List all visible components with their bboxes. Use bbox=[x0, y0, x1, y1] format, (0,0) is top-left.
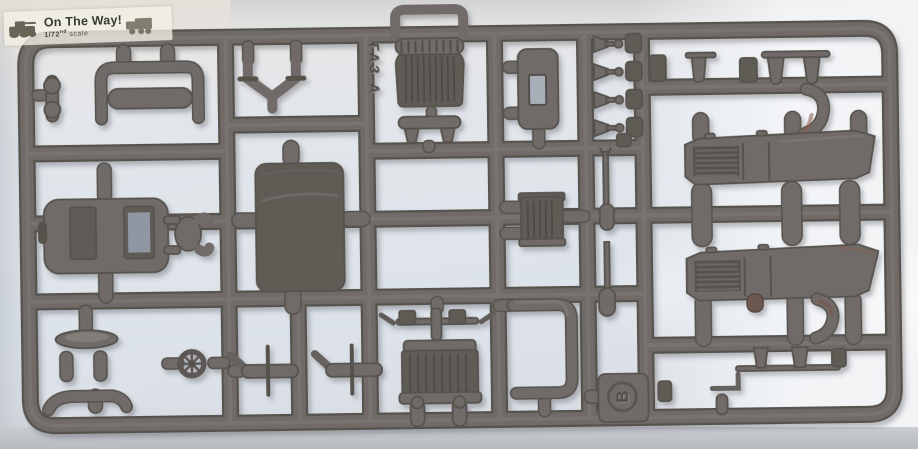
part-cab-roof bbox=[38, 198, 210, 274]
part-truck-bed-side-top bbox=[685, 129, 876, 185]
sprue-letter: B bbox=[613, 390, 632, 403]
part-cross-axle bbox=[398, 116, 460, 143]
part-hood-panel bbox=[255, 163, 345, 292]
watermark-banner: On The Way! 1/72nd scale bbox=[3, 6, 172, 46]
part-y-bracket bbox=[240, 60, 305, 109]
part-windshield-frame bbox=[101, 67, 199, 119]
part-small-radiator bbox=[519, 193, 566, 247]
embossed-kit-name: ГАЗ-А ГАЗ-А bbox=[366, 43, 383, 97]
part-seat-bracket bbox=[381, 308, 493, 342]
halftrack-icon bbox=[7, 17, 42, 40]
part-bottom-right-fittings bbox=[712, 347, 847, 415]
photo-of-model-sprue: B B ГАЗ-А ГАЗ-А On The Way! 1/72nd s bbox=[0, 0, 918, 449]
part-curved-bumper bbox=[48, 396, 126, 410]
part-steering-wheel bbox=[180, 352, 204, 376]
part-door-panel bbox=[518, 49, 559, 130]
part-seat-pan-dish bbox=[55, 330, 117, 349]
watermark-text: On The Way! 1/72nd scale bbox=[44, 14, 123, 39]
watermark-scale-word: scale bbox=[69, 30, 88, 38]
part-radiator-seatback bbox=[395, 38, 464, 107]
part-fender-c-channel bbox=[513, 301, 572, 393]
sprue-photo-illustration: B B ГАЗ-А ГАЗ-А bbox=[0, 0, 918, 449]
watermark-scale-ordinal: nd bbox=[60, 28, 67, 34]
watermark-scale-fraction: 1/72 bbox=[44, 31, 60, 39]
part-knob-column bbox=[44, 76, 61, 122]
truck-icon bbox=[125, 13, 156, 36]
embossed-kit-name-text: ГАЗ-А bbox=[366, 43, 382, 96]
part-truck-bed-side-bottom bbox=[686, 243, 879, 301]
watermark-scale: 1/72nd scale bbox=[44, 27, 122, 38]
